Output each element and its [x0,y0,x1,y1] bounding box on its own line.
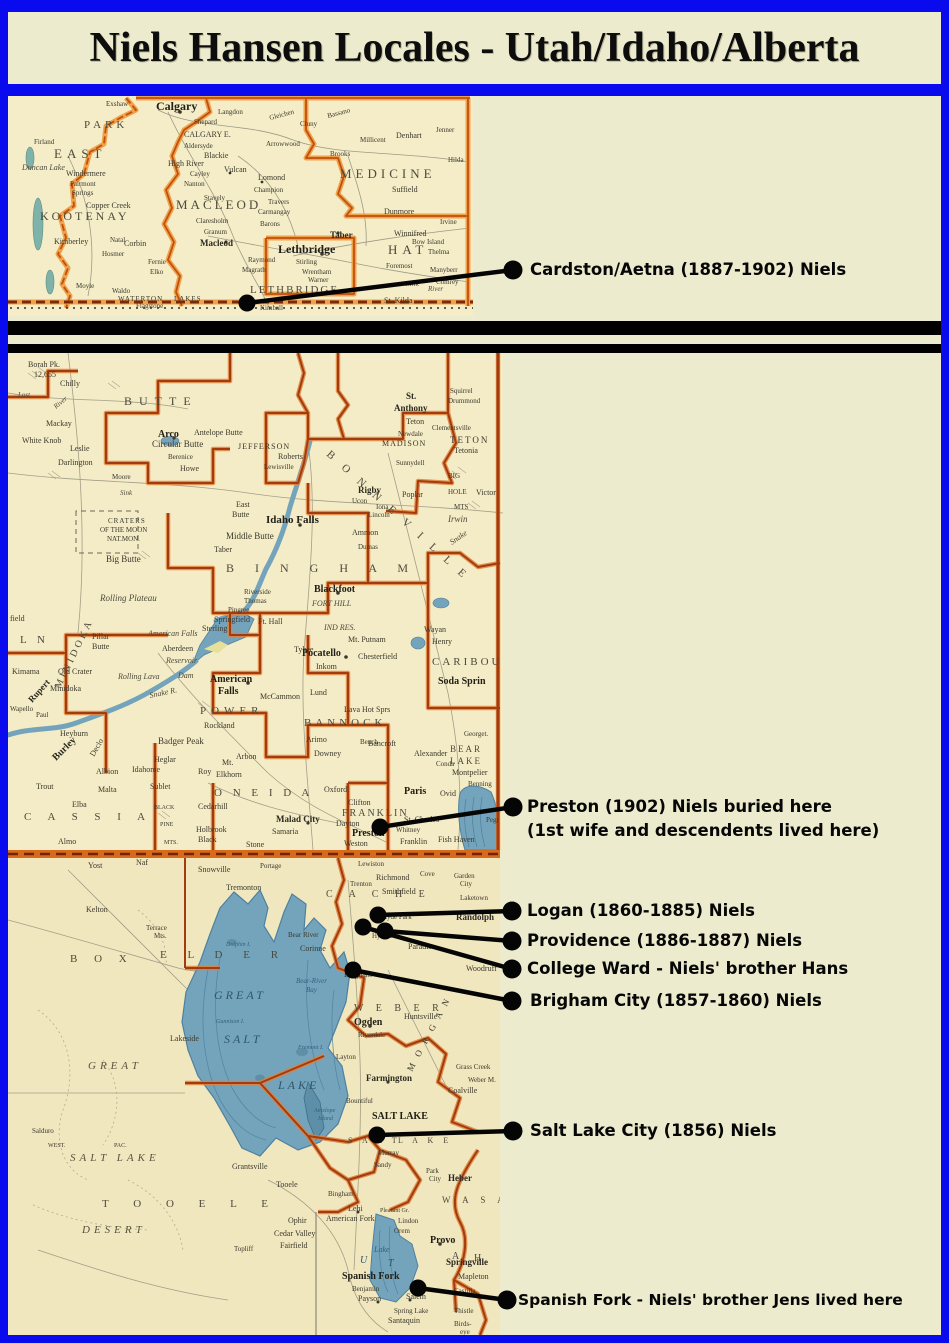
map-label: Kelton [86,905,108,914]
map-label: Denhart [396,131,423,140]
map-label: Thistle [454,1307,473,1315]
map-label: Preston [352,828,385,839]
map-label: Pleasant Gr. [380,1208,409,1214]
map-label: Hyde Park [382,913,412,921]
map-label: JEFFERSON [238,442,290,451]
map-label: Rockland [204,721,235,730]
page-border-left [0,0,8,1343]
map-label: Borah Pk. [28,360,60,369]
map-label: Hyrum [372,932,392,940]
map-label: Macleod [200,238,233,248]
map-label: LAKE [277,1078,319,1092]
callout-college-ward: College Ward - Niels' brother Hans [527,957,848,981]
map-label: Lincoln [368,511,390,519]
map-label: Brooks [330,150,351,158]
map-label: Winnifred [394,229,427,238]
map-label: Drummond [448,397,481,405]
map-label: C A C H E [326,889,432,900]
map-label: Hilda [448,156,464,164]
map-label: Rolling Plateau [99,593,157,603]
map-label: Pegr [486,816,500,824]
map-label: Nanton [184,180,205,188]
map-label: Aldersyde [184,142,213,150]
map-label: Chesterfield [358,652,397,661]
map-label: Salem [406,1292,427,1301]
map-label: Milk [405,280,420,288]
map-label: Sterling [202,624,227,633]
map-label: Montpelier [452,768,488,777]
map-label: Arimo [306,735,327,744]
map-label: W A S A [442,1195,500,1205]
map-label: Blackfoot [314,584,356,595]
map-label: City [460,880,473,888]
map-label: Dumas [358,543,378,551]
map-label: Howe [180,464,200,473]
map-label: Lethbridge [278,242,336,256]
map-label: Malta [98,785,117,794]
map-label: Ucon [352,497,368,505]
map-label: Georget. [464,730,488,738]
map-label: Vulcan [224,165,247,174]
page-border-right [941,0,949,1343]
callout-salt-lake-city: Salt Lake City (1856) Niels [530,1119,776,1143]
map-label: SALT LAKE [70,1152,160,1164]
map-label: MADISON [382,439,426,448]
callout-providence: Providence (1886-1887) Niels [527,929,802,953]
map-label: Raymond [248,256,276,264]
map-label: Wayan [424,625,446,634]
map-label: Cluny [300,120,318,128]
map-label: SALT [224,1032,262,1046]
alberta-map-image: CalgaryExshawLangdonGleichenClunyBassano… [8,96,473,316]
map-label: EAST [54,146,107,161]
map-label: Spanish Fork [342,1271,400,1282]
map-label: Tooele [276,1180,298,1189]
map-label: Ogden [354,1017,383,1028]
map-label: FRANKLIN [342,808,409,819]
callout-bullet [504,1122,523,1141]
map-label: Travers [268,198,289,206]
map-label: Foremost [386,262,413,270]
map-label: Ft. Hall [258,617,283,626]
map-label: Bay [306,986,318,994]
callout-logan: Logan (1860-1885) Niels [527,899,755,923]
map-label: Heyburn [60,729,88,738]
map-label: Natal [110,236,125,244]
map-label: River [427,285,443,293]
map-label: BEAR [450,744,482,754]
map-label: S A L T [348,1136,401,1145]
map-label: Irvine [440,218,457,226]
map-label: Heber [448,1173,472,1183]
map-label: American Fork [326,1214,375,1223]
map-label: Elko [150,268,164,276]
map-label: Flagstone [136,302,163,310]
map-label: Millicent [360,136,386,144]
map-label: Ovid [440,789,456,798]
map-label: Irwin [447,514,468,524]
map-label: PINE [160,822,174,828]
map-label: Sublet [150,782,171,791]
map-label: Oxford [324,785,347,794]
map-label: Lava Hot Sprs [344,705,390,714]
map-label: Trout [36,782,54,791]
map-label: St. Charles [404,815,439,824]
map-label: Roberts [278,452,303,461]
map-label: Inkom [316,662,338,671]
map-label: Clifton [348,798,371,807]
map-label: Laketown [460,894,488,902]
map-label: Benjamin [352,1285,380,1293]
map-label: CRATERS [108,517,146,525]
map-label: CALGARY E. [184,130,231,139]
map-label: McCammon [260,692,300,701]
map-label: Dolphin I. [225,942,251,948]
map-label: Brigham [344,970,373,979]
map-label: Berenice [168,453,193,461]
map-label: American [210,674,253,685]
callout-bullet [503,902,522,921]
map-label: Bingham [328,1190,354,1198]
map-label: Squirrel [450,387,473,395]
map-label: Claresholm [196,217,229,225]
map-label: LETHBRIDGE [250,284,339,296]
map-label: Elba [72,800,87,809]
map-label: Thelma [428,248,450,256]
map-label: Sink [120,489,133,497]
map-label: Jenner [436,126,455,134]
callout-bullet [503,932,522,951]
map-label: LAKES [174,295,202,303]
map-label: WEST. [48,1143,66,1149]
map-label: Thomas [244,597,267,605]
map-label: KOOTENAY [40,209,130,223]
map-label: Suffield [392,185,418,194]
callout-bullet [504,261,523,280]
map-label: Kimberley [54,237,88,246]
map-label: Falls [218,686,239,697]
map-label: Grantsville [232,1162,268,1171]
map-label: Darlington [58,458,93,467]
map-label: BUTTE [124,394,198,408]
map-label: Coalville [448,1086,478,1095]
map-label: Yost [88,861,103,870]
separator-bar-1 [8,321,941,335]
map-label: Corinne [300,944,326,953]
map-label: Springs [72,189,94,197]
map-label: Tremonton [226,883,261,892]
page-title: Niels Hansen Locales - Utah/Idaho/Albert… [89,24,859,72]
callout-cardston: Cardston/Aetna (1887-1902) Niels [530,258,846,282]
map-label: Weston [344,839,368,848]
map-label: Bountiful [346,1097,373,1105]
idaho-map-image: Borah Pk.12,655ChillyLostRiverMackayWhit… [8,353,503,850]
map-label: Woodruff [466,964,497,973]
map-label: Santaquin [388,1316,420,1325]
map-label: Kimama [12,667,40,676]
map-label: MTS. [164,840,178,846]
map-label: PAC. [114,1143,127,1149]
map-label: Cayley [190,170,210,178]
map-label: Arbon [236,752,256,761]
map-label: Dayton [336,819,360,828]
map-label: East [236,500,251,509]
map-label: U [360,1255,368,1266]
map-label: Cove [420,870,435,878]
callout-bullet [503,992,522,1011]
map-label: 12,655 [34,370,56,379]
map-label: MTS [454,503,469,511]
map-label: Pocatello [302,648,341,659]
map-label: Holbrook [196,825,227,834]
map-label: Fairmont [70,180,96,188]
map-label: Lindon [398,1217,419,1225]
map-label: Barons [260,220,280,228]
map-label: Spring Lake [394,1307,428,1315]
map-label: Middle Butte [226,531,274,541]
map-label: Mackay [46,419,72,428]
utah-map-image: YostNafSnowvillePortageTremontonLewiston… [8,850,500,1335]
map-label: Waldo [112,287,131,295]
map-label: Stone [246,840,265,849]
map-label: B O X [70,953,134,965]
map-label: Blackie [204,151,229,160]
map-label: Warner [308,276,329,284]
map-label: Topliff [234,1245,254,1253]
map-label: Poplar [402,490,423,499]
map-label: Fairfield [280,1241,308,1250]
map-label: Springville [446,1257,488,1267]
map-label: Lehi [348,1204,363,1213]
map-label: St. [406,391,416,401]
map-label: Salduro [32,1127,54,1135]
map-label: Richmond [376,873,409,882]
map-label: Exshaw [106,100,129,108]
map-label: Butte [92,642,110,651]
map-label: Trenton [350,880,372,888]
map-label: Garden [454,872,475,880]
map-label: Portage [260,862,281,870]
map-label: Ammon [352,528,378,537]
map-label: Calgary [156,99,197,113]
callout-brigham-city: Brigham City (1857-1860) Niels [530,989,822,1013]
map-label: Chilly [60,379,80,388]
map-label: Paris [404,786,426,797]
map-label: Wrentham [302,268,332,276]
map-label: Fernie [148,258,166,266]
map-label: Teton [406,417,424,426]
map-label: Granum [204,228,227,236]
map-label: Lake [373,1245,390,1254]
map-label: Bancroft [368,739,397,748]
map-label: Manyberr [430,266,458,274]
map-label: Badger Peak [158,736,204,746]
map-label: Reservoir [165,656,198,665]
map-label: High River [168,159,204,168]
map-label: Lewisville [264,463,294,471]
map-label: Leslie [70,444,90,453]
map-label: Magrath [242,266,266,274]
map-label: Snowville [198,865,231,874]
map-label: Riverside [244,588,271,596]
map-label: Mts. [154,932,167,940]
separator-bar-2 [8,344,941,353]
map-label: Corbin [124,239,146,248]
map-label: field [10,614,25,623]
map-label: Lund [310,688,327,697]
map-label: Fish Haven [438,835,475,844]
callout-bullet [503,960,522,979]
map-label: Mt. Putnam [348,635,387,644]
map-label: BLACK [154,805,175,811]
map-label: FORT HILL [311,599,352,608]
map-label: B I N G H A M [226,561,417,575]
map-label: Whitney [396,826,421,834]
map-label: Provo [430,1235,455,1246]
map-label: Sandy [374,1161,392,1169]
map-label: Sunnydell [396,459,424,467]
map-label: Carmangay [258,208,291,216]
map-label: Newdale [398,430,423,438]
map-label: Big Butte [106,554,141,564]
map-label: Black [198,835,217,844]
map-label: Layton [336,1053,356,1061]
map-label: Tetonia [454,446,478,455]
map-label: Payson [358,1294,381,1303]
map-label: Springfield [214,615,250,624]
map-label: Lakeside [170,1034,199,1043]
map-label: Bear River [288,931,319,939]
map-label: POWER [200,705,264,717]
map-label: L A K E [398,1136,452,1145]
map-label: Benning [468,780,492,788]
map-label: Dunmore [384,207,415,216]
callout-bullet [504,798,523,817]
map-label: Wapello [10,705,34,713]
map-label: Soda Sprin [438,676,486,687]
map-label: Taber [214,545,232,554]
page-border-top [0,0,949,12]
map-label: Alexander [414,749,448,758]
map-label: Randolph [456,912,494,922]
map-label: IND RES. [323,623,356,632]
map-label: HOLE [448,488,467,496]
map-label: T O O E L E [102,1198,279,1210]
map-label: Henry [432,637,452,646]
map-label: Aberdeen [162,644,193,653]
map-label: Birds- [454,1320,472,1328]
map-label: Lewiston [358,860,385,868]
map-label: Orem [394,1227,410,1235]
map-label: Elkhorn [216,770,242,779]
map-label: City [429,1175,442,1183]
map-label: Copper Creek [86,201,131,210]
map-label: Island [317,1116,334,1122]
map-label: SALT LAKE [372,1111,428,1122]
map-label: Hosmer [102,250,125,258]
map-label: Dam [177,671,194,680]
map-label: Fremont I. [297,1045,323,1051]
map-label: Bear-River [296,977,327,985]
map-label: Riverdale [358,1031,385,1039]
map-label: Weber M. [468,1076,496,1084]
map-label: BIG [448,472,460,480]
map-label: Firland [34,138,55,146]
map-label: Stirling [296,258,318,266]
map-label: Rolling Lava [117,672,160,681]
map-label: Antelope [313,1108,336,1114]
map-label: Idaho Falls [266,514,320,526]
map-label: White Knob [22,436,61,445]
map-label: Lomond [258,173,285,182]
page: Niels Hansen Locales - Utah/Idaho/Albert… [0,0,949,1343]
map-label: Shepard [194,118,217,126]
map-label: TETON [450,435,489,445]
map-label: LAKE [450,756,482,766]
page-border-bottom [0,1335,949,1343]
map-label: Taber [330,230,353,240]
map-label: MEDICINE [340,166,436,181]
map-label: Paul [36,711,49,719]
map-label: Pillar [92,632,110,641]
map-label: OF THE MOON [100,526,147,534]
map-label: HAT [388,242,428,257]
map-label: Pingree [228,606,249,614]
map-label: Samaria [272,827,299,836]
map-label: Franklin [400,837,427,846]
map-label: Moore [112,473,131,481]
map-label: Castilla [454,1287,476,1295]
map-label: E L D E R [160,949,287,961]
map-label: Victor [476,488,496,497]
map-label: O N E I D A [214,787,313,799]
map-label: Grass Creek [456,1063,491,1071]
map-label: Butte [232,510,250,519]
map-label: Malad City [276,814,320,824]
map-label: Anthony [394,403,428,413]
map-label: Cedarhill [198,802,229,811]
map-label: eye [460,1328,470,1335]
map-label: DESERT [81,1224,146,1236]
map-label: St. Kilda [384,296,413,305]
map-label: Ophir [288,1216,307,1225]
map-label: Clementsville [432,424,471,432]
map-label: Albion [96,767,118,776]
map-label: GREAT [88,1060,142,1072]
map-label: Mapleton [458,1272,489,1281]
map-label: NAT.MON. [107,535,140,543]
map-label: Almo [58,837,76,846]
map-label: Duncan Lake [21,163,65,172]
map-label: MACLEOD [176,197,261,212]
map-label: Roy [198,767,211,776]
map-label: Gunnison I. [216,1019,244,1025]
map-label: CARIBOU [432,656,503,668]
callout-preston: Preston (1902) Niels buried here(1st wif… [527,795,879,843]
callout-spanish-fork: Spanish Fork - Niels' brother Jens lived… [518,1288,903,1312]
map-label: GREAT [214,988,266,1002]
map-label: Iona [376,503,389,511]
map-label: Idahome [132,765,160,774]
title-band: Niels Hansen Locales - Utah/Idaho/Albert… [8,12,941,84]
map-label: Naf [136,858,148,867]
map-label: Lost [17,391,31,399]
map-label: Moyle [76,282,94,290]
map-label: Cedar Valley [274,1229,315,1238]
map-label: Murray [378,1149,399,1157]
map-label: BANNOCK [304,717,386,729]
map-label: PARK [84,119,128,131]
